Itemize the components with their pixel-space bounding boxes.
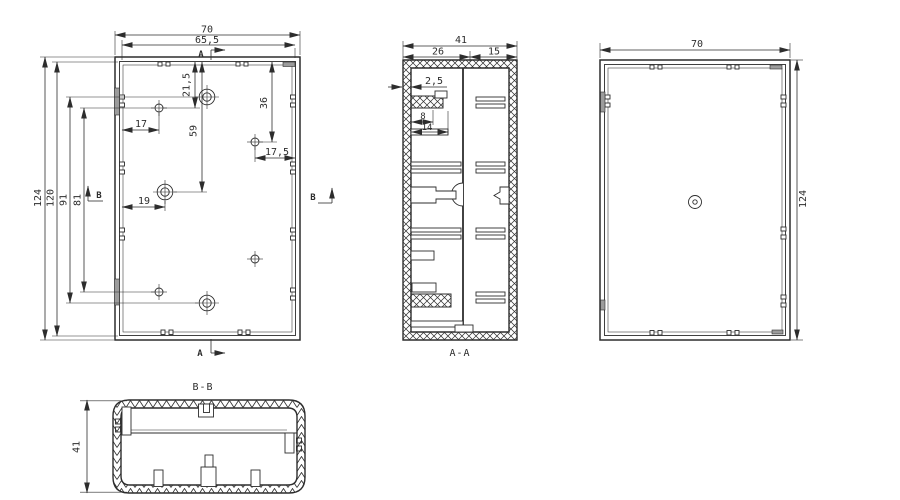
section-bb-view: B-B 41	[72, 382, 306, 493]
clip-top-right	[283, 62, 295, 67]
front-bosses	[153, 85, 219, 315]
section-b-label: B	[310, 193, 316, 203]
clip-back-bottom-right	[772, 330, 783, 334]
dim-bb-height: 41	[72, 441, 83, 453]
aa-left-features	[411, 91, 463, 327]
section-marker-b-right: B	[310, 188, 332, 203]
clip-left-top	[115, 88, 120, 115]
dim-hole-top-offset: 21,5	[182, 73, 193, 97]
dim-boss-center-offset: 59	[189, 125, 200, 137]
bb-left-rail	[122, 407, 131, 435]
dim-back-height: 124	[798, 190, 809, 208]
section-bb-title: B-B	[192, 382, 213, 393]
bb-internals	[116, 404, 302, 487]
enclosure-drawing: 70 65,5 124 120 91 81 21,5 5	[0, 0, 900, 500]
clip-back-left	[601, 92, 606, 112]
dim-hole-offset-x: 17	[135, 119, 147, 130]
dim-back-width: 70	[691, 39, 703, 50]
front-view: 70 65,5 124 120 91 81 21,5 5	[33, 25, 332, 360]
back-side-clips	[601, 65, 784, 334]
section-a-label: A	[198, 50, 204, 60]
small-hole	[247, 251, 263, 267]
section-aa-title: A-A	[449, 348, 470, 359]
dim-aa-wall-thickness: 2,5	[425, 76, 443, 87]
clip-back-left-low	[601, 300, 606, 310]
dim-right-hole-offset-y: 36	[259, 97, 270, 109]
dim-width-outer: 70	[201, 25, 213, 36]
boss-hole	[195, 85, 219, 109]
section-marker-b-left: B	[88, 186, 103, 201]
dim-height-inner: 120	[46, 189, 57, 207]
dim-aa-seg-left: 26	[432, 47, 444, 58]
boss-hole	[153, 180, 177, 204]
technical-drawing-canvas: 70 65,5 124 120 91 81 21,5 5	[0, 0, 900, 500]
dim-aa-seg-right: 15	[488, 47, 500, 58]
section-a-label: A	[197, 349, 203, 359]
bb-screw-posts	[154, 455, 260, 487]
boss-hole	[195, 291, 219, 315]
dim-aa-width: 41	[455, 35, 467, 46]
dim-right-hole-offset-x: 17,5	[265, 147, 289, 158]
back-view: 70 124	[600, 39, 809, 340]
dim-boss-span: 91	[59, 194, 70, 206]
aa-rib-foot	[455, 325, 473, 332]
section-aa-view: 41 26 15 2,5 8 14 A-A	[388, 35, 517, 359]
bb-right-rail	[285, 433, 294, 453]
back-center-hole	[689, 196, 702, 209]
section-marker-a-bottom: A	[197, 339, 225, 359]
front-small-holes	[151, 100, 263, 300]
front-inner-dimensions: 21,5 59 17 19 36 17,5	[122, 62, 295, 211]
front-top-dimensions: 70 65,5	[115, 25, 300, 61]
clip-back-top-right	[770, 65, 782, 69]
dim-boss-offset-x: 19	[138, 196, 150, 207]
dim-hole-span: 81	[73, 194, 84, 206]
section-marker-a-top: A	[198, 50, 225, 60]
aa-right-clip	[494, 187, 509, 204]
dim-aa-rib-b: 14	[422, 123, 433, 133]
bb-top-clip	[199, 404, 214, 417]
section-b-label: B	[96, 191, 102, 201]
back-dimensions: 70 124	[600, 39, 809, 340]
dim-aa-rib-a: 8	[420, 112, 425, 122]
dim-width-inner: 65,5	[195, 35, 219, 46]
dim-height-outer: 124	[33, 189, 44, 207]
